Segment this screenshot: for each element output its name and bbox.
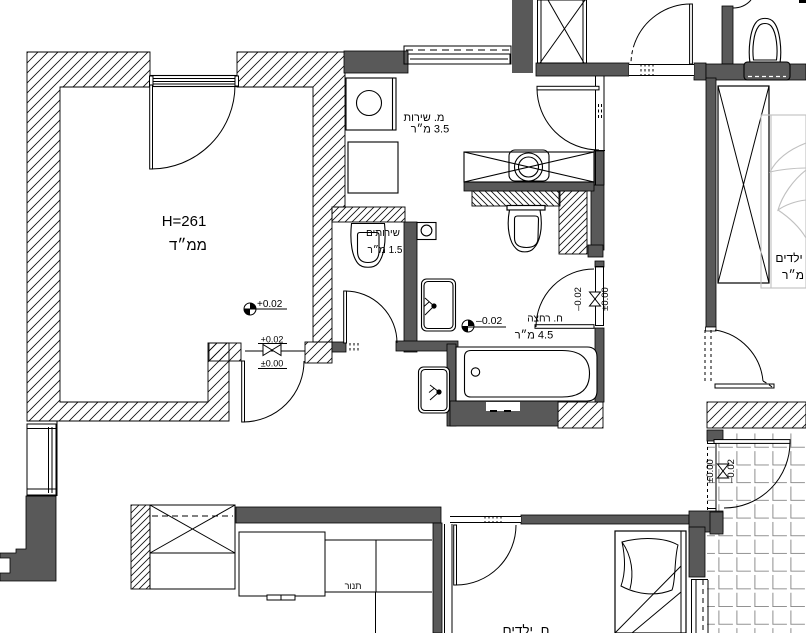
svg-text:ילדים: ילדים bbox=[775, 251, 802, 265]
svg-text:3.5 מ״ר: 3.5 מ״ר bbox=[411, 123, 449, 136]
svg-text:ממ״ד: ממ״ד bbox=[169, 237, 207, 254]
svg-text:ח. ילדים: ח. ילדים bbox=[503, 623, 550, 633]
svg-text:–0.02: –0.02 bbox=[476, 315, 502, 327]
svg-text:±0.00: ±0.00 bbox=[261, 359, 283, 369]
svg-text:מ״ר: מ״ר bbox=[782, 268, 804, 282]
svg-text:–0.02: –0.02 bbox=[573, 287, 584, 311]
svg-text:1.5 מ״ר: 1.5 מ״ר bbox=[368, 245, 403, 256]
svg-text:H=261: H=261 bbox=[162, 213, 207, 230]
svg-text:±0.00: ±0.00 bbox=[600, 287, 611, 311]
svg-text:ח. רחצה: ח. רחצה bbox=[527, 314, 563, 325]
svg-text:שירותים: שירותים bbox=[366, 228, 400, 239]
svg-text:מ. שירות: מ. שירות bbox=[404, 112, 445, 124]
svg-text:תנור: תנור bbox=[345, 581, 362, 591]
svg-text:+0.02: +0.02 bbox=[261, 335, 284, 345]
svg-text:±0.00: ±0.00 bbox=[705, 459, 716, 483]
svg-text:+0.02: +0.02 bbox=[257, 299, 283, 310]
svg-text:4.5 מ״ר: 4.5 מ״ר bbox=[515, 329, 553, 342]
svg-text:–0.02: –0.02 bbox=[726, 459, 737, 483]
